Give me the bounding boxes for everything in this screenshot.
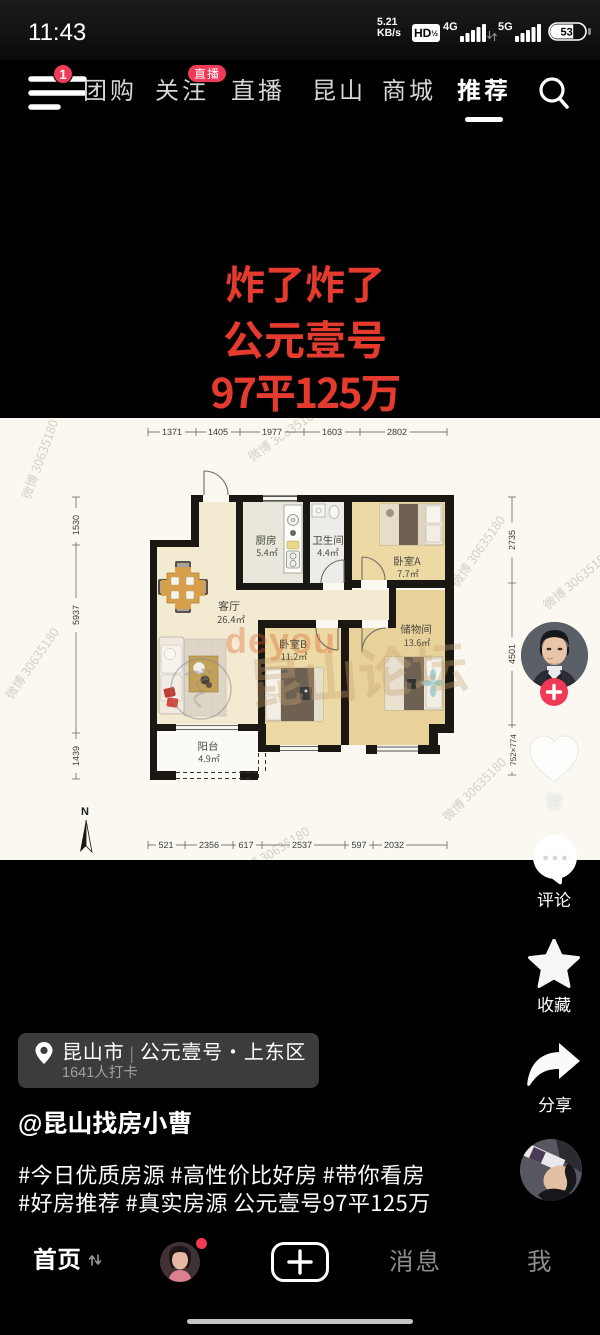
- svg-text:2032: 2032: [384, 840, 404, 850]
- svg-text:2356: 2356: [199, 840, 219, 850]
- svg-text:1439: 1439: [71, 746, 81, 766]
- svg-text:1371: 1371: [162, 427, 182, 437]
- svg-text:2537: 2537: [292, 840, 312, 850]
- svg-text:2802: 2802: [387, 427, 407, 437]
- svg-text:2735: 2735: [507, 530, 517, 550]
- svg-text:4.9㎡: 4.9㎡: [198, 752, 220, 765]
- svg-text:储物间: 储物间: [400, 622, 432, 637]
- svg-text:N: N: [81, 806, 89, 818]
- svg-text:1977: 1977: [262, 427, 282, 437]
- svg-text:4501: 4501: [507, 644, 517, 664]
- svg-text:1530: 1530: [71, 515, 81, 535]
- svg-text:7.7㎡: 7.7㎡: [397, 567, 419, 580]
- svg-text:53: 53: [561, 27, 573, 39]
- svg-text:26.4㎡: 26.4㎡: [217, 612, 245, 626]
- svg-text:1603: 1603: [322, 427, 342, 437]
- svg-text:11.2㎡: 11.2㎡: [281, 650, 308, 663]
- svg-text:5.4㎡: 5.4㎡: [256, 546, 278, 559]
- svg-text:13.6㎡: 13.6㎡: [404, 636, 431, 649]
- svg-text:597: 597: [351, 840, 366, 850]
- svg-text:752×774: 752×774: [509, 734, 518, 766]
- svg-text:521: 521: [158, 840, 173, 850]
- svg-text:4.4㎡: 4.4㎡: [317, 546, 339, 559]
- svg-text:1405: 1405: [208, 427, 228, 437]
- svg-text:5937: 5937: [71, 605, 81, 625]
- svg-text:617: 617: [238, 840, 253, 850]
